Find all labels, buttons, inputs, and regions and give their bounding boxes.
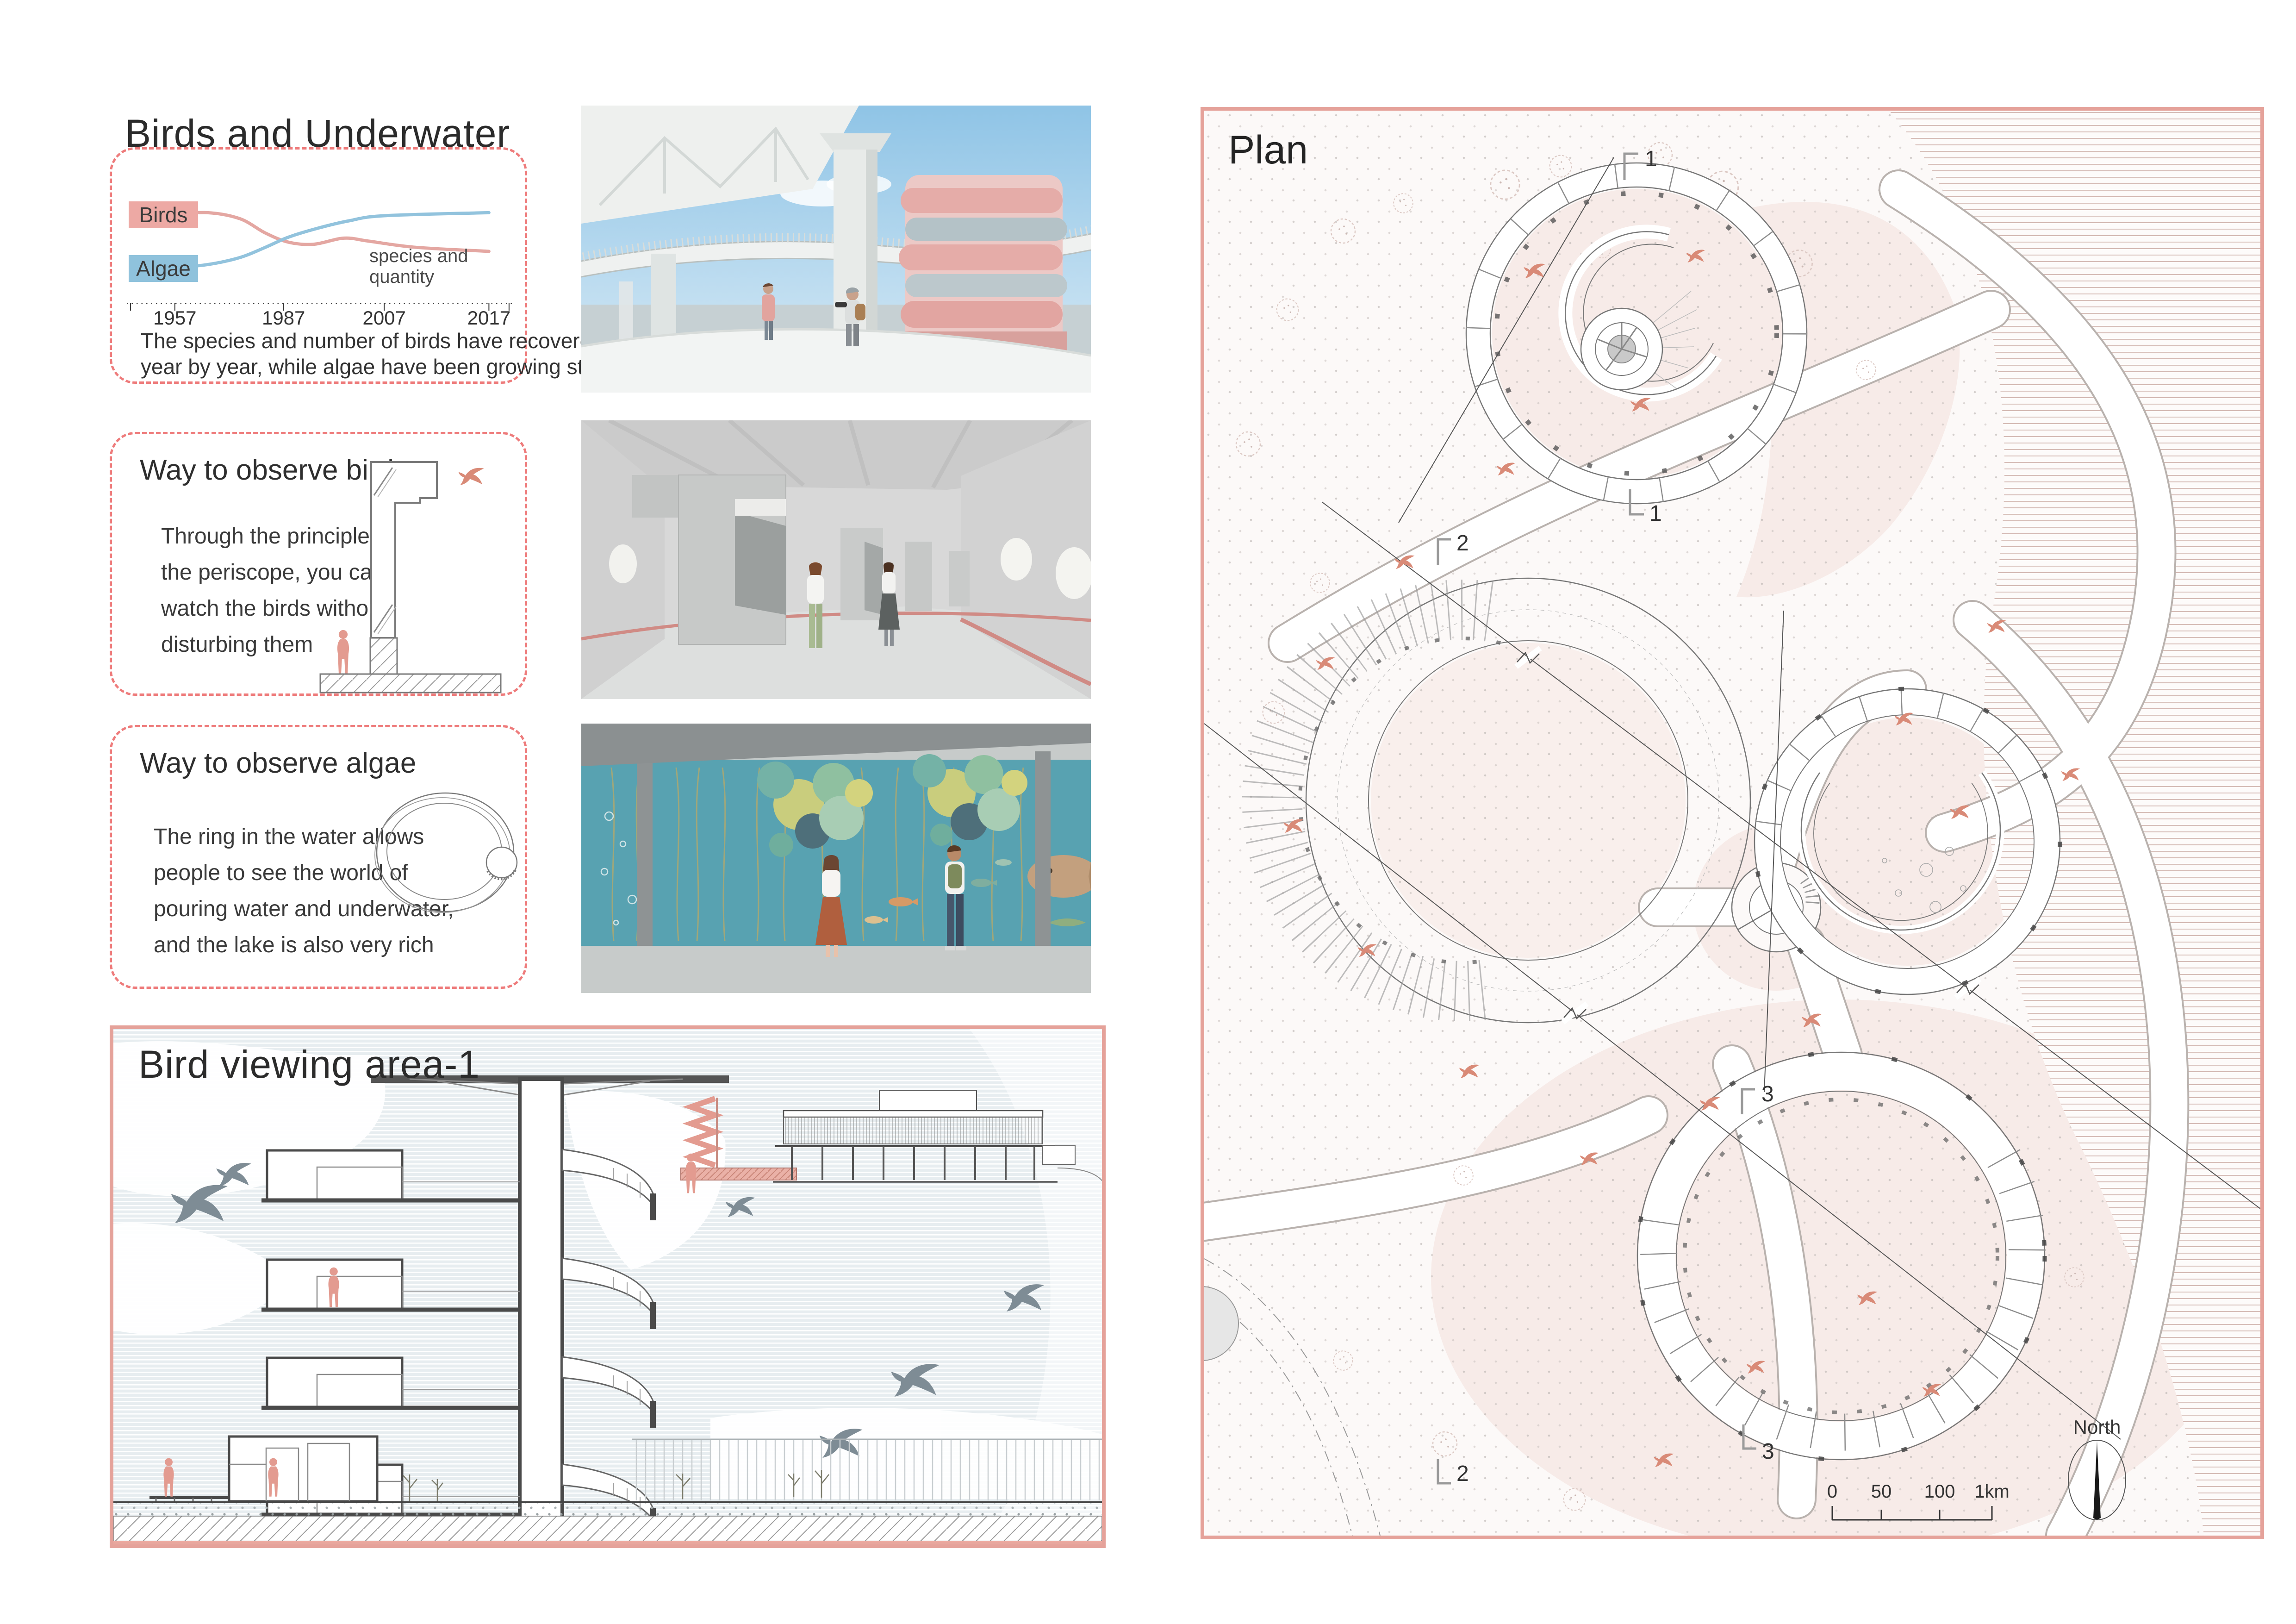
plan-title: Plan xyxy=(1228,127,1308,173)
periscope-diagram xyxy=(311,443,524,693)
marker-3-bottom: 3 xyxy=(1762,1439,1774,1464)
render-underwater-mural xyxy=(581,724,1091,993)
scale-1km: 1km xyxy=(1974,1481,2010,1502)
marker-2-bottom: 2 xyxy=(1456,1462,1469,1486)
glass-fence xyxy=(632,1439,1102,1500)
marker-3-top: 3 xyxy=(1761,1082,1774,1106)
chart-annotation: species and quantity xyxy=(369,246,525,287)
periscope-pedestal xyxy=(370,638,397,674)
observe-birds-text: disturbing them xyxy=(161,627,313,663)
north-label: North xyxy=(2073,1416,2121,1438)
legend-birds: Birds xyxy=(129,201,198,228)
mural-column xyxy=(637,751,653,950)
svg-text:1957: 1957 xyxy=(153,307,196,329)
periscope-pillar xyxy=(905,542,932,611)
bird-viewing-section-drawing xyxy=(113,1029,1102,1544)
mural-column xyxy=(1035,751,1051,950)
water-ring-diagram xyxy=(371,778,524,931)
ground-hatch xyxy=(113,1516,1102,1541)
observe-algae-text: and the lake is also very rich xyxy=(154,927,434,963)
presentation-board: Birds and Underwater 1957198720072017 Bi… xyxy=(0,0,2296,1624)
observe-algae-text: people to see the world of xyxy=(154,855,408,891)
observe-algae-box: Way to observe algae The ring in the wat… xyxy=(110,725,527,989)
render-walkway-exterior xyxy=(581,106,1091,393)
bird-icon xyxy=(459,468,484,485)
marker-2-top: 2 xyxy=(1456,531,1469,556)
observe-birds-box: Way to observe birds Through the princip… xyxy=(110,432,527,696)
marker-1-top: 1 xyxy=(1645,147,1657,171)
bird-viewing-title: Bird viewing area-1 xyxy=(138,1042,480,1087)
svg-text:2007: 2007 xyxy=(362,307,405,329)
wall-light xyxy=(1001,538,1032,581)
plan-panel: 1 1 2 2 3 3 0 50 100 1km xyxy=(1201,107,2264,1539)
scale-100: 100 xyxy=(1924,1481,1955,1502)
annex-building xyxy=(229,1437,377,1501)
chart-box: 1957198720072017 Birds Algae species and… xyxy=(110,147,527,384)
person-icon xyxy=(337,630,349,674)
marker-1-inner: 1 xyxy=(1649,501,1662,526)
bird-viewing-panel: Bird viewing area-1 xyxy=(110,1025,1106,1548)
site-plan-drawing: 1 1 2 2 3 3 0 50 100 1km xyxy=(1204,111,2260,1536)
observe-algae-title: Way to observe algae xyxy=(140,747,416,780)
svg-text:2017: 2017 xyxy=(467,307,510,329)
wall-light xyxy=(609,544,637,583)
scale-0: 0 xyxy=(1827,1481,1837,1502)
svg-text:1987: 1987 xyxy=(262,307,305,329)
ground xyxy=(320,674,501,693)
pink-base xyxy=(681,1168,796,1180)
legend-algae: Algae xyxy=(129,255,198,282)
periscope-pillar xyxy=(949,551,970,606)
paving-strip xyxy=(113,1503,1102,1516)
chart-caption-line1: The species and number of birds have rec… xyxy=(141,328,604,353)
scale-50: 50 xyxy=(1871,1481,1892,1502)
chart-caption-line2: year by year, while algae have been grow… xyxy=(141,354,639,379)
tower-core xyxy=(520,1079,562,1523)
render-gallery-interior xyxy=(581,420,1091,699)
